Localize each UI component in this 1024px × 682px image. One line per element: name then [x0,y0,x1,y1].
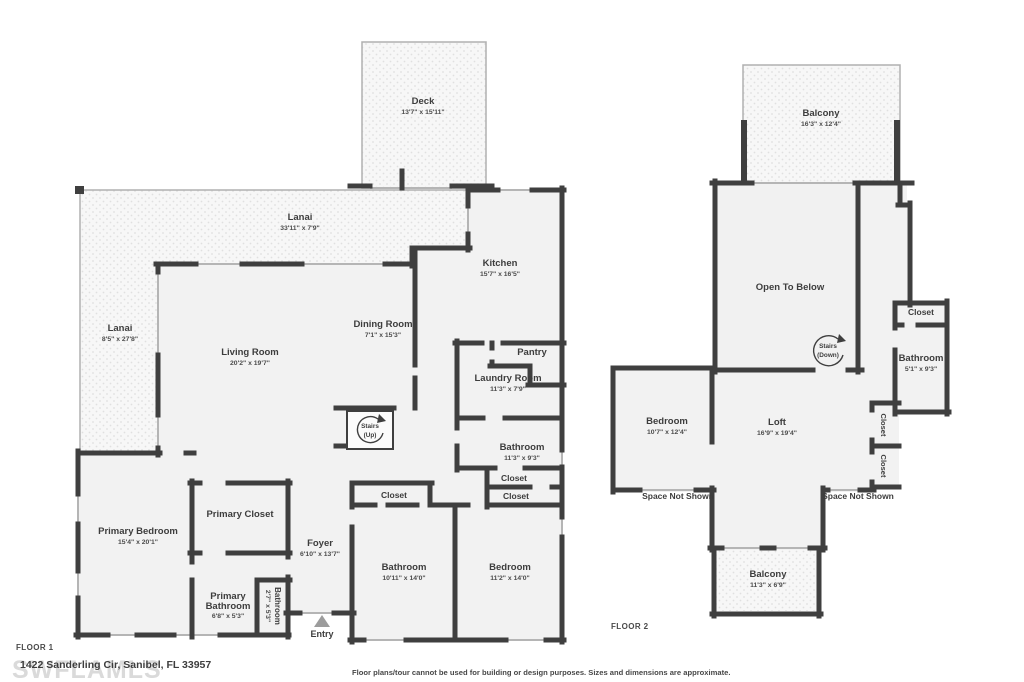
lanai-left-dims: 8'5" x 27'8" [102,336,138,343]
laundry-dims: 11'3" x 7'9" [490,386,526,393]
loft-label: Loft [768,417,787,428]
floor2-title: FLOOR 2 [611,622,649,631]
primary-bedroom-label: Primary Bedroom [98,526,178,537]
small-bathroom-label: Bathroom [273,587,282,625]
closet-top-label: Closet [908,307,934,317]
stairs-up-label2: (Up) [364,432,377,439]
lanai-top-label: Lanai [288,212,313,223]
entry-marker: Entry [310,615,333,639]
primary-bedroom-dims: 15'4" x 20'1" [118,539,158,546]
balcony-post-left [741,120,747,183]
floor-plan-canvas: Stairs (Up) Entry Deck 13'7" x 15'11" La… [0,0,1024,682]
foyer-dims: 6'10" x 13'7" [300,551,340,558]
lanai-left-label: Lanai [108,323,133,334]
balcony-bottom-dims: 11'3" x 6'9" [750,582,786,589]
balcony-top-dims: 16'3" x 12'4" [801,121,841,128]
space-not-shown-right-label: Space Not Shown [822,491,894,501]
kitchen-label: Kitchen [483,258,518,269]
entry-label: Entry [310,629,333,639]
bedroom-dims: 11'2" x 14'0" [490,575,530,582]
lanai-corner-post [75,186,84,194]
stairs-up: Stairs (Up) [347,411,393,449]
floor2-plan: Stairs (Down) Balcony 16'3" x 12'4" Open… [613,65,949,616]
floor-plan-page: Stairs (Up) Entry Deck 13'7" x 15'11" La… [0,0,1024,682]
floor1-title: FLOOR 1 [16,643,54,652]
loft-dims: 16'9" x 19'4" [757,430,797,437]
bedroom-label: Bedroom [489,562,531,573]
living-room-dims: 20'2" x 19'7" [230,360,270,367]
big-bathroom-dims: 10'11" x 14'0" [382,575,425,582]
primary-bathroom-dims: 6'8" x 5'3" [212,613,244,620]
bathroom2-label: Bathroom [899,353,944,364]
lanai-top-dims: 33'11" x 7'9" [280,225,320,232]
bathroom2-dims: 5'1" x 9'3" [905,366,937,373]
bedroom2-dims: 10'7" x 12'4" [647,429,687,436]
closet-mid-label: Closet [879,414,888,437]
primary-bathroom-label2: Bathroom [206,601,251,612]
big-bathroom-label: Bathroom [382,562,427,573]
open-to-below-label: Open To Below [756,282,825,293]
kitchen-dims: 15'7" x 16'5" [480,271,520,278]
living-room-label: Living Room [221,347,279,358]
foyer-label: Foyer [307,538,333,549]
pantry-label: Pantry [517,347,547,358]
balcony-top-label: Balcony [803,108,841,119]
balcony-bottom-label: Balcony [750,569,788,580]
deck-dims: 13'7" x 15'11" [401,109,444,116]
small-bathroom-dims: 2'7" x 5'3" [264,590,271,622]
primary-closet-label: Primary Closet [206,509,274,520]
dining-room-label: Dining Room [353,319,412,330]
deck-label: Deck [412,96,435,107]
hall-bathroom-label: Bathroom [500,442,545,453]
hall-bathroom-dims: 11'3" x 9'3" [504,455,540,462]
floor1-plan: Stairs (Up) Entry Deck 13'7" x 15'11" La… [75,42,564,642]
stairs-down-label2: (Down) [817,352,839,359]
closet-c-label: Closet [381,490,407,500]
disclaimer-text: Floor plans/tour cannot be used for buil… [352,668,730,677]
closet-a-label: Closet [501,473,527,483]
stairs-up-label: Stairs [361,423,379,430]
balcony-post-right [894,120,900,183]
laundry-label: Laundry Room [474,373,541,384]
balcony-bottom-area [716,550,817,611]
bedroom2-label: Bedroom [646,416,688,427]
entry-arrow-icon [314,615,330,627]
property-address: 1422 Sanderling Cir, Sanibel, FL 33957 [20,659,211,671]
space-not-shown-left-label: Space Not Shown [642,491,714,501]
dining-room-dims: 7'1" x 15'3" [365,332,401,339]
closet-bottom-label: Closet [879,455,888,478]
stairs-down-label: Stairs [819,343,837,350]
closet-b-label: Closet [503,491,529,501]
